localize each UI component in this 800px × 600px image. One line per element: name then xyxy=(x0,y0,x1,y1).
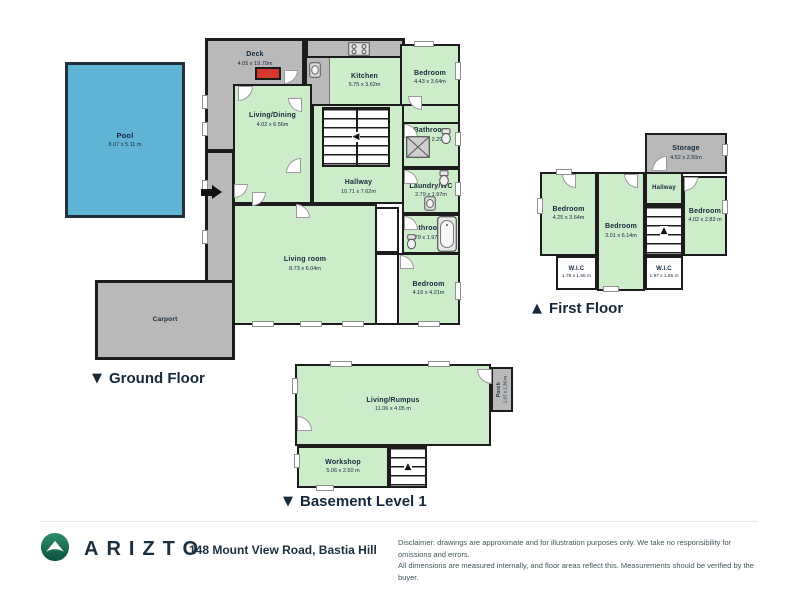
stairs-first-floor: ▲ xyxy=(645,205,683,256)
window xyxy=(342,321,364,327)
hallway-nook xyxy=(402,104,460,124)
pool-area: Pool 8.07 x 5.11 m xyxy=(65,62,185,218)
window xyxy=(414,41,434,47)
room-living-rumpus: Living/Rumpus 11.06 x 4.05 m xyxy=(295,364,491,446)
first-floor-title: ▲ First Floor xyxy=(532,300,623,317)
window xyxy=(455,282,461,300)
pool-label: Pool 8.07 x 5.11 m xyxy=(109,131,142,148)
carport-area: Carport xyxy=(95,280,235,360)
toilet-icon xyxy=(406,234,417,250)
window xyxy=(418,321,440,327)
window xyxy=(428,361,450,367)
bbq-grill xyxy=(255,67,281,80)
living-room-label: Living room 8.73 x 6.04m xyxy=(284,256,326,273)
hallway-ground-label: Hallway 10.71 x 7.62m xyxy=(341,179,376,196)
window xyxy=(603,286,619,292)
workshop-label: Workshop 5.06 x 2.50 m xyxy=(325,459,361,476)
laundry-tub-icon xyxy=(424,196,436,211)
property-address: 148 Mount View Road, Bastia Hill xyxy=(189,543,377,557)
window xyxy=(722,144,728,156)
window xyxy=(455,182,461,196)
window xyxy=(300,321,322,327)
toilet-icon xyxy=(438,170,450,187)
basement-title-text: Basement Level 1 xyxy=(300,493,427,510)
first-floor-title-text: First Floor xyxy=(549,300,623,317)
stairs-ground: ◀ xyxy=(322,107,390,167)
porch-label: Porch 1.97 x 1.36 m xyxy=(496,376,508,403)
bedroom-bottom-label: Bedroom 4.16 x 4.21m xyxy=(412,281,444,298)
disclaimer-line-1: Disclaimer: drawings are approximate and… xyxy=(398,537,754,560)
window xyxy=(202,230,208,244)
kitchen-label: Kitchen 5.75 x 3.62m xyxy=(327,73,381,90)
deck-label: Deck 4.05 x 19.70m xyxy=(238,51,273,68)
carport-label: Carport xyxy=(153,316,178,324)
disclaimer-text: Disclaimer: drawings are approximate and… xyxy=(398,537,754,584)
storage-label: Storage 4.52 x 2.50m xyxy=(670,145,702,162)
living-dining-label: Living/Dining 4.02 x 6.56m xyxy=(249,112,296,129)
window xyxy=(455,132,461,146)
arizto-logo-icon xyxy=(40,532,70,562)
footer-divider xyxy=(40,521,758,522)
window xyxy=(292,378,298,394)
window xyxy=(330,361,352,367)
window xyxy=(537,198,543,214)
disclaimer-line-2: All dimensions are measured internally, … xyxy=(398,560,754,583)
window xyxy=(316,485,334,491)
window xyxy=(202,95,208,109)
room-hallway-first: Hallway xyxy=(645,172,683,205)
closet-lower xyxy=(375,253,399,325)
wic-left-label: W.I.C 1.78 x 1.55 m xyxy=(562,266,591,280)
hallway-first-label: Hallway xyxy=(652,185,676,193)
bedroom-top-label: Bedroom 4.43 x 3.64m xyxy=(414,70,446,87)
down-triangle-icon: ▼ xyxy=(283,494,293,509)
room-living-room: Living room 8.73 x 6.04m xyxy=(233,204,377,325)
ground-floor-title: ▼ Ground Floor xyxy=(92,370,205,387)
room-bedroom-middle-first: Bedroom 3.01 x 6.14m xyxy=(597,172,645,291)
closet-upper xyxy=(375,207,399,253)
stairs-down-arrow-icon: ◀ xyxy=(352,132,361,142)
brand-name: ARIZTO xyxy=(84,538,206,561)
window xyxy=(294,454,300,468)
window xyxy=(252,321,274,327)
room-porch: Porch 1.97 x 1.36 m xyxy=(491,367,513,412)
entrance-arrow-icon xyxy=(201,185,222,199)
stove-icon xyxy=(348,42,370,56)
ground-floor-title-text: Ground Floor xyxy=(109,370,205,387)
room-wic-left: W.I.C 1.78 x 1.55 m xyxy=(556,256,597,290)
basement-title: ▼ Basement Level 1 xyxy=(283,493,427,510)
room-wic-right: W.I.C 1.97 x 1.55 m xyxy=(645,256,683,290)
kitchen-sink-icon xyxy=(309,62,321,78)
stairs-up-arrow-icon: ▲ xyxy=(404,462,413,472)
window xyxy=(556,169,572,175)
up-triangle-icon: ▲ xyxy=(532,301,542,316)
toilet-icon xyxy=(440,128,452,145)
down-triangle-icon: ▼ xyxy=(92,371,102,386)
window xyxy=(455,62,461,80)
window xyxy=(202,122,208,136)
living-rumpus-label: Living/Rumpus 11.06 x 4.05 m xyxy=(366,397,419,414)
bathtub-icon xyxy=(437,216,457,252)
stairs-basement: ▲ xyxy=(389,446,427,488)
wic-right-label: W.I.C 1.97 x 1.55 m xyxy=(649,266,678,280)
bedroom-left-first-label: Bedroom 4.25 x 3.64m xyxy=(552,206,584,223)
room-workshop: Workshop 5.06 x 2.50 m xyxy=(297,446,389,488)
shower-icon xyxy=(406,136,430,158)
stairs-up-arrow-icon: ▲ xyxy=(660,226,669,236)
bedroom-right-first-label: Bedroom 4.02 x 2.83 m xyxy=(688,208,721,225)
window xyxy=(722,200,728,214)
bedroom-middle-first-label: Bedroom 3.01 x 6.14m xyxy=(605,223,637,240)
